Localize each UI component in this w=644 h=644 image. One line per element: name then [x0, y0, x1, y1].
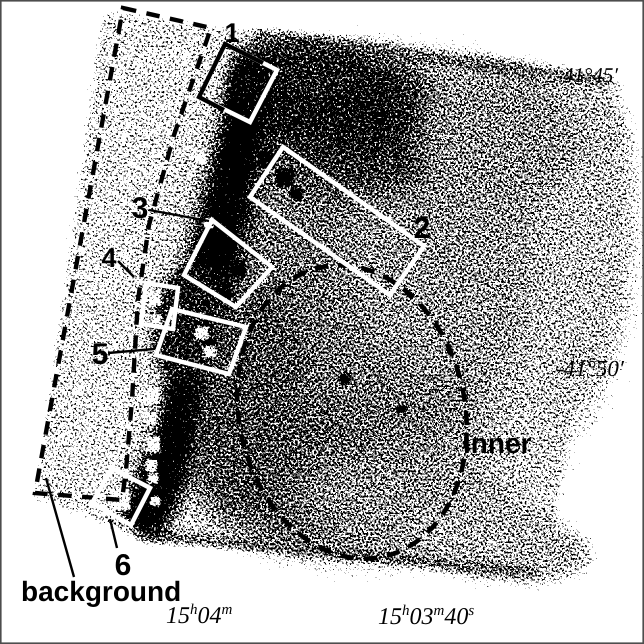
svg-text:inner: inner — [463, 428, 532, 459]
svg-text:3: 3 — [132, 192, 149, 225]
svg-text:2: 2 — [414, 212, 431, 245]
svg-text:1: 1 — [224, 18, 239, 48]
svg-text:background: background — [21, 576, 181, 607]
svg-text:-41°50′: -41°50′ — [556, 356, 625, 381]
svg-text:5: 5 — [92, 338, 109, 371]
svg-text:4: 4 — [101, 243, 116, 273]
svg-text:15h03m40s: 15h03m40s — [378, 603, 474, 630]
svg-text:-41°45′: -41°45′ — [556, 63, 618, 87]
